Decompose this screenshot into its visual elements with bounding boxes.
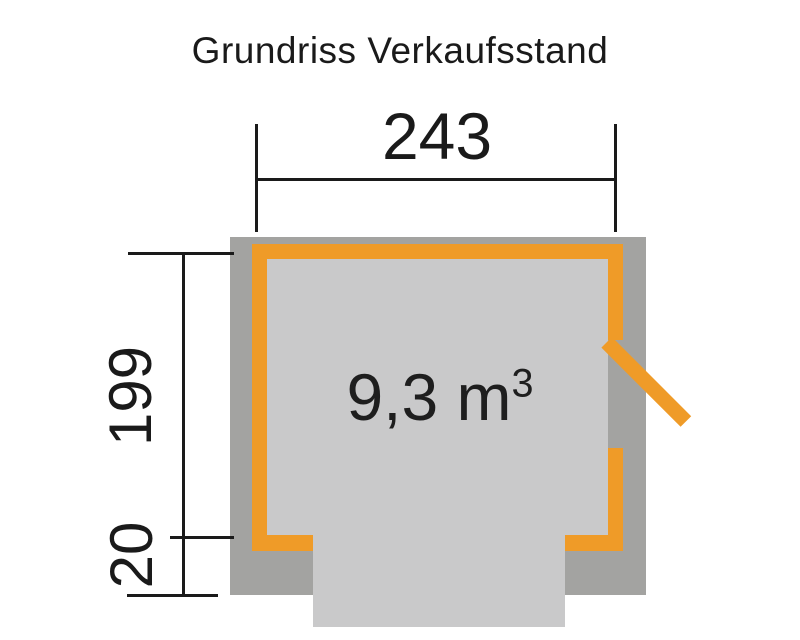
width-dimension-tick-left bbox=[255, 124, 258, 232]
depth-dimension-label: 199 bbox=[101, 346, 161, 446]
volume-value: 9,3 m bbox=[346, 360, 511, 434]
page-title: Grundriss Verkaufsstand bbox=[192, 30, 609, 72]
depth-dimension-line bbox=[182, 252, 185, 597]
width-dimension-line bbox=[257, 178, 617, 181]
overhang-dimension-label: 20 bbox=[102, 522, 162, 589]
depth-dimension-tick-top bbox=[128, 252, 234, 255]
width-dimension-tick-right bbox=[614, 124, 617, 232]
volume-annotation: 9,3 m3 bbox=[346, 364, 533, 430]
depth-dimension-tick-middle bbox=[170, 536, 234, 539]
depth-dimension-tick-bottom bbox=[127, 594, 218, 597]
counter-extension bbox=[313, 535, 565, 627]
width-dimension-label: 243 bbox=[382, 103, 492, 169]
volume-exponent: 3 bbox=[512, 361, 534, 405]
floorplan-canvas: Grundriss Verkaufsstand 243 199 20 9,3 m… bbox=[0, 0, 800, 640]
